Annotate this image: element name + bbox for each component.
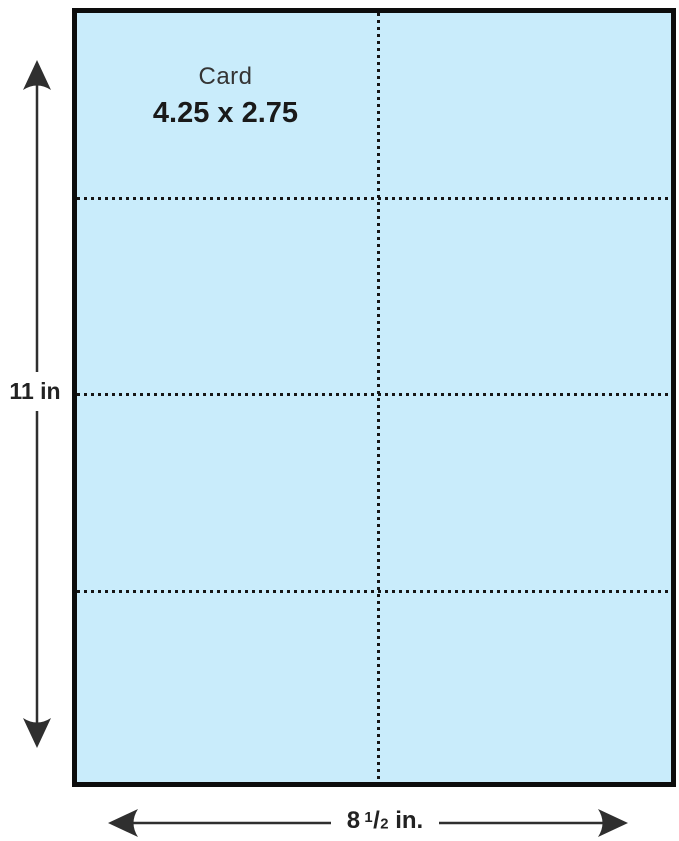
horizontal-perforation-line-1 bbox=[77, 197, 671, 200]
arrow-down-icon bbox=[23, 718, 51, 748]
width-whole-number: 8 bbox=[347, 807, 360, 834]
height-dimension-label: 11 in bbox=[0, 372, 70, 411]
card-label-block: Card 4.25 x 2.75 bbox=[77, 63, 374, 130]
width-dimension-label: 81/2in. bbox=[331, 803, 439, 839]
card-size-label: 4.25 x 2.75 bbox=[77, 97, 374, 130]
width-fraction-denominator: 2 bbox=[380, 816, 388, 832]
arrow-right-icon bbox=[598, 809, 628, 837]
sheet: Card 4.25 x 2.75 bbox=[72, 8, 676, 787]
vertical-perforation-line bbox=[377, 13, 380, 782]
horizontal-perforation-line-2 bbox=[77, 393, 671, 396]
width-unit: in. bbox=[395, 807, 423, 834]
width-fraction-slash: / bbox=[373, 807, 380, 834]
diagram-canvas: Card 4.25 x 2.75 11 in 81/2in. bbox=[0, 0, 679, 841]
width-fraction-numerator: 1 bbox=[364, 810, 372, 826]
horizontal-perforation-line-3 bbox=[77, 590, 671, 593]
card-label: Card bbox=[77, 63, 374, 91]
